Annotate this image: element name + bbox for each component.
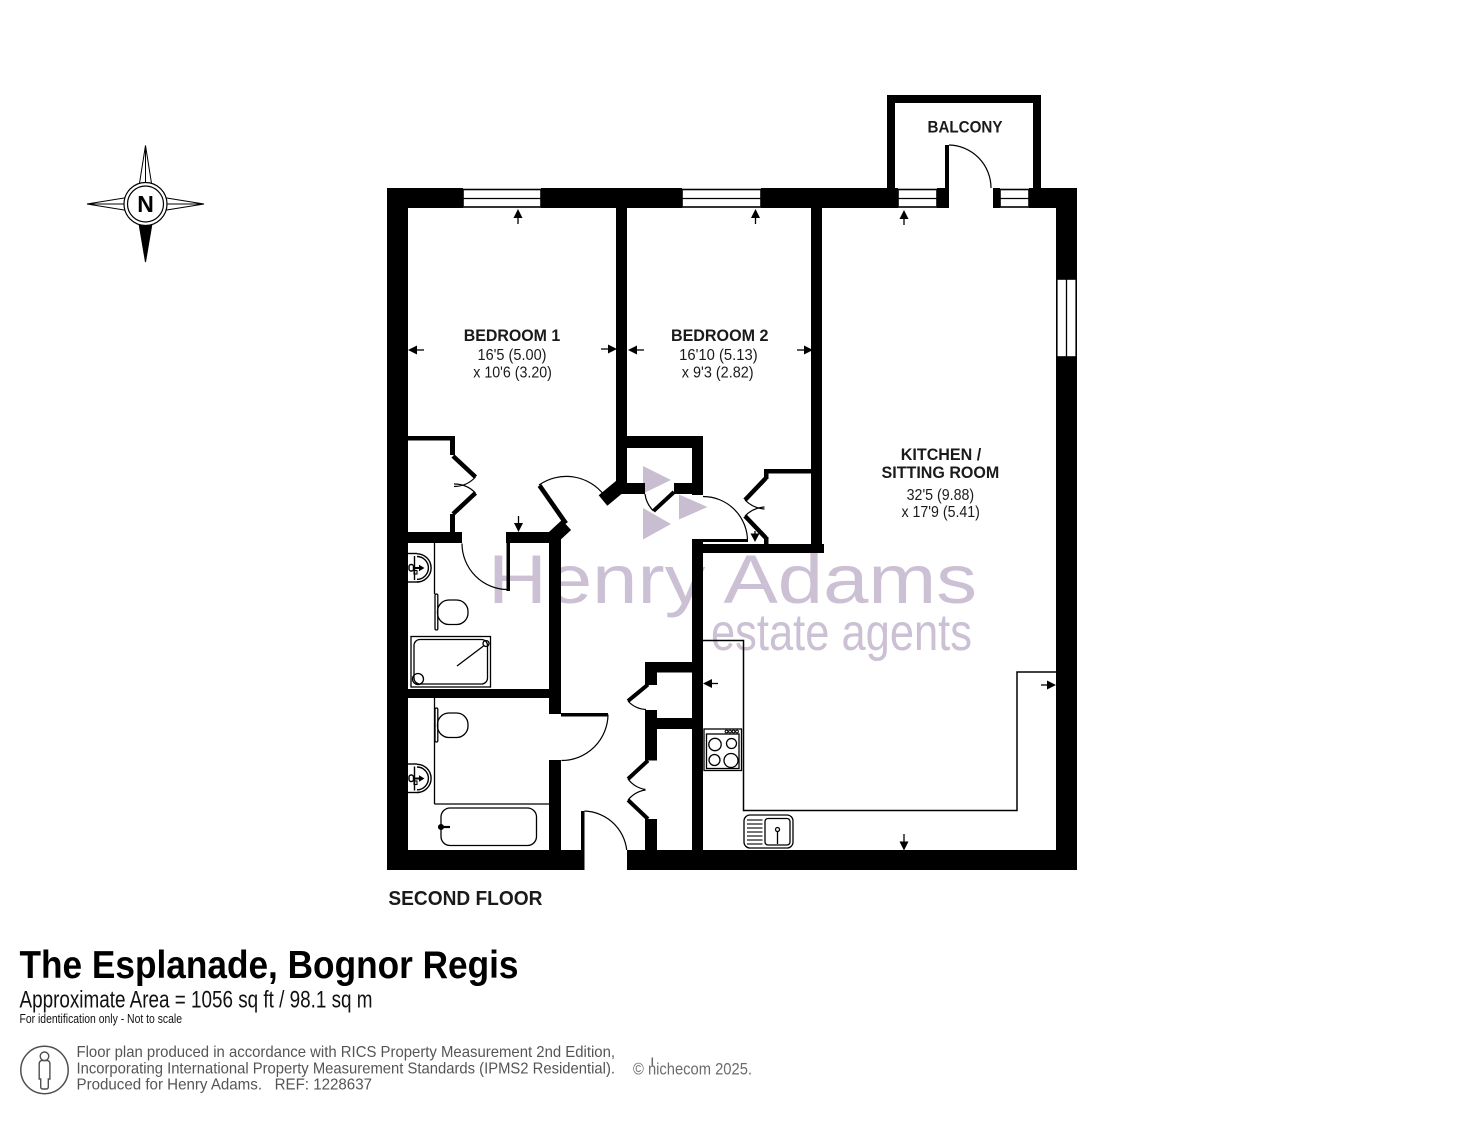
svg-text:BEDROOM 1: BEDROOM 1 <box>464 327 561 345</box>
svg-text:Approximate Area = 1056 sq ft: Approximate Area = 1056 sq ft / 98.1 sq … <box>20 987 373 1014</box>
svg-text:Produced for Henry Adams. RE: Produced for Henry Adams. REF: 1228637 <box>77 1077 373 1094</box>
svg-text:estate agents: estate agents <box>711 604 972 662</box>
svg-text:32'5 (9.88): 32'5 (9.88) <box>907 487 975 504</box>
svg-text:BALCONY: BALCONY <box>928 118 1003 137</box>
svg-text:Incorporating International Pr: Incorporating International Property Mea… <box>77 1060 616 1077</box>
svg-text:BEDROOM 2: BEDROOM 2 <box>671 327 769 345</box>
svg-text:SITTING ROOM: SITTING ROOM <box>882 464 1000 482</box>
svg-text:The Esplanade, Bognor Regis: The Esplanade, Bognor Regis <box>20 944 519 987</box>
svg-text:x 9'3 (2.82): x 9'3 (2.82) <box>682 365 754 382</box>
svg-text:KITCHEN /: KITCHEN / <box>901 446 982 464</box>
svg-text:16'5 (5.00): 16'5 (5.00) <box>478 347 547 364</box>
svg-text:16'10 (5.13): 16'10 (5.13) <box>679 347 758 364</box>
svg-text:x 17'9 (5.41): x 17'9 (5.41) <box>902 504 980 521</box>
svg-text:Floor plan produced in accorda: Floor plan produced in accordance with R… <box>77 1044 616 1061</box>
svg-text:© nichecom 2025.: © nichecom 2025. <box>633 1060 752 1079</box>
svg-text:N: N <box>137 191 154 217</box>
svg-text:x 10'6 (3.20): x 10'6 (3.20) <box>473 365 552 382</box>
svg-text:SECOND FLOOR: SECOND FLOOR <box>388 888 542 910</box>
svg-text:For identification only - Not: For identification only - Not to scale <box>20 1011 183 1026</box>
